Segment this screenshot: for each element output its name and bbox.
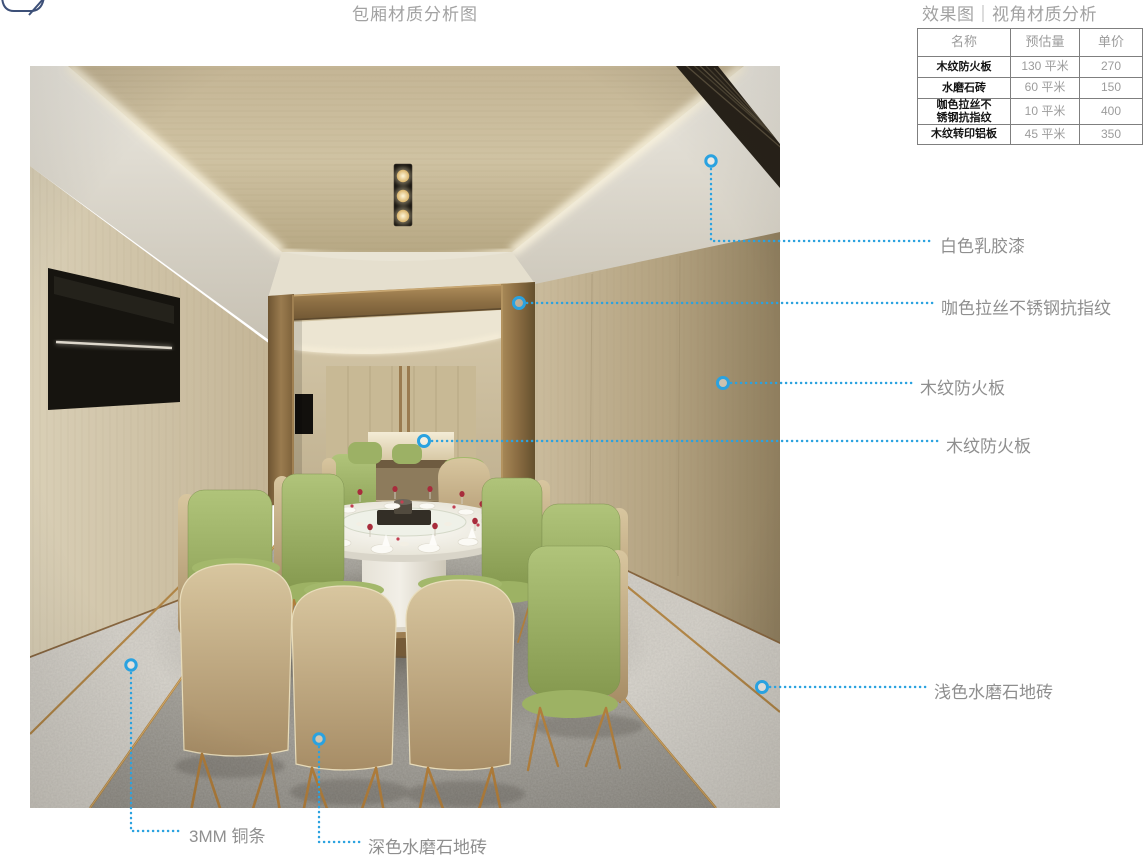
dining-room-rendering — [30, 66, 780, 808]
page-subtitle: 效果图｜视角材质分析 — [922, 0, 1097, 25]
callout-label-wood-fireboard-2: 木纹防火板 — [946, 432, 1031, 457]
materials-table: 名称 预估量 单价 木纹防火板 130 平米 270 水磨石砖 60 平米 15… — [917, 28, 1143, 145]
table-row: 水磨石砖 60 平米 150 — [918, 78, 1143, 99]
col-header-name: 名称 — [918, 29, 1011, 57]
callout-label-dark-terrazzo: 深色水磨石地砖 — [368, 833, 487, 857]
material-analysis-board: { "page": { "title": "包厢材质分析图", "subtitl… — [0, 0, 1144, 857]
callout-label-white-latex-paint: 白色乳胶漆 — [940, 232, 1025, 257]
callout-label-brushed-stainless: 咖色拉丝不锈钢抗指纹 — [941, 294, 1111, 319]
table-row: 木纹转印铝板 45 平米 350 — [918, 125, 1143, 145]
callout-label-light-terrazzo: 浅色水磨石地砖 — [934, 678, 1053, 703]
col-header-quantity: 预估量 — [1011, 29, 1080, 57]
table-row: 木纹防火板 130 平米 270 — [918, 57, 1143, 78]
table-row: 咖色拉丝不 锈钢抗指纹 10 平米 400 — [918, 99, 1143, 125]
table-header-row: 名称 预估量 单价 — [918, 29, 1143, 57]
callout-label-copper-strip: 3MM 铜条 — [189, 822, 266, 847]
vignette — [30, 66, 780, 808]
logo-fragment-icon — [0, 0, 48, 16]
callout-label-wood-fireboard-1: 木纹防火板 — [920, 374, 1005, 399]
page-title: 包厢材质分析图 — [352, 0, 522, 25]
col-header-price: 单价 — [1080, 29, 1143, 57]
